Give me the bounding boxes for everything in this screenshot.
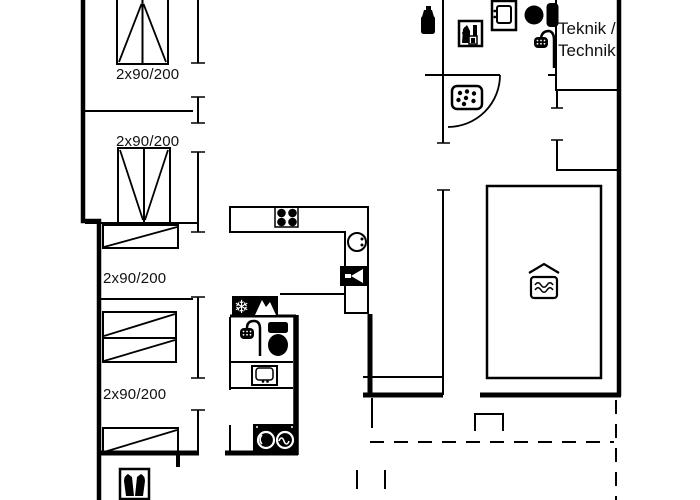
- bed-size-label: 2x90/200: [103, 270, 166, 287]
- floor-plan: ❄: [0, 0, 700, 500]
- toilet-icon: [525, 3, 559, 27]
- bed-size-label: 2x90/200: [116, 133, 179, 150]
- fireplace-icon: [340, 266, 368, 286]
- bed-size-label: 2x90/200: [103, 386, 166, 403]
- bunk-bed-icon: [103, 312, 176, 362]
- double-bed-icon: [117, 0, 168, 64]
- room-label-line2: Technik: [558, 40, 616, 62]
- whirlpool-icon: [452, 86, 482, 109]
- washbasin-icon: [252, 366, 277, 385]
- door-jambs: [191, 63, 563, 410]
- double-bed-icon: [118, 148, 170, 223]
- washbasin-icon: [492, 1, 516, 30]
- laundry-appliances: [253, 424, 296, 454]
- bunk-bed-icon: [103, 225, 178, 248]
- bottle-icon: [421, 6, 435, 34]
- floor-plan-canvas: ❄: [0, 0, 700, 500]
- toilet-icon: [268, 322, 288, 356]
- door-step: [475, 414, 503, 431]
- svg-text:❄: ❄: [234, 297, 249, 318]
- freezer-icon: ❄: [232, 296, 253, 318]
- kitchen-sink-icon: [348, 233, 366, 251]
- shower-icon: [534, 31, 554, 68]
- bunk-bed-icon: [103, 428, 178, 453]
- swimming-pool: [487, 186, 601, 378]
- shower-icon: [240, 321, 260, 356]
- oven-icon: [253, 296, 278, 317]
- utility-cabinet-icon: [459, 21, 482, 46]
- stove-burners-icon: [277, 209, 297, 227]
- pool-water-icon: [529, 264, 559, 298]
- boots-icon: [120, 469, 149, 499]
- room-label-line1: Teknik /: [558, 18, 616, 40]
- room-label-teknik: Teknik / Technik: [558, 18, 616, 62]
- bed-size-label: 2x90/200: [116, 66, 179, 83]
